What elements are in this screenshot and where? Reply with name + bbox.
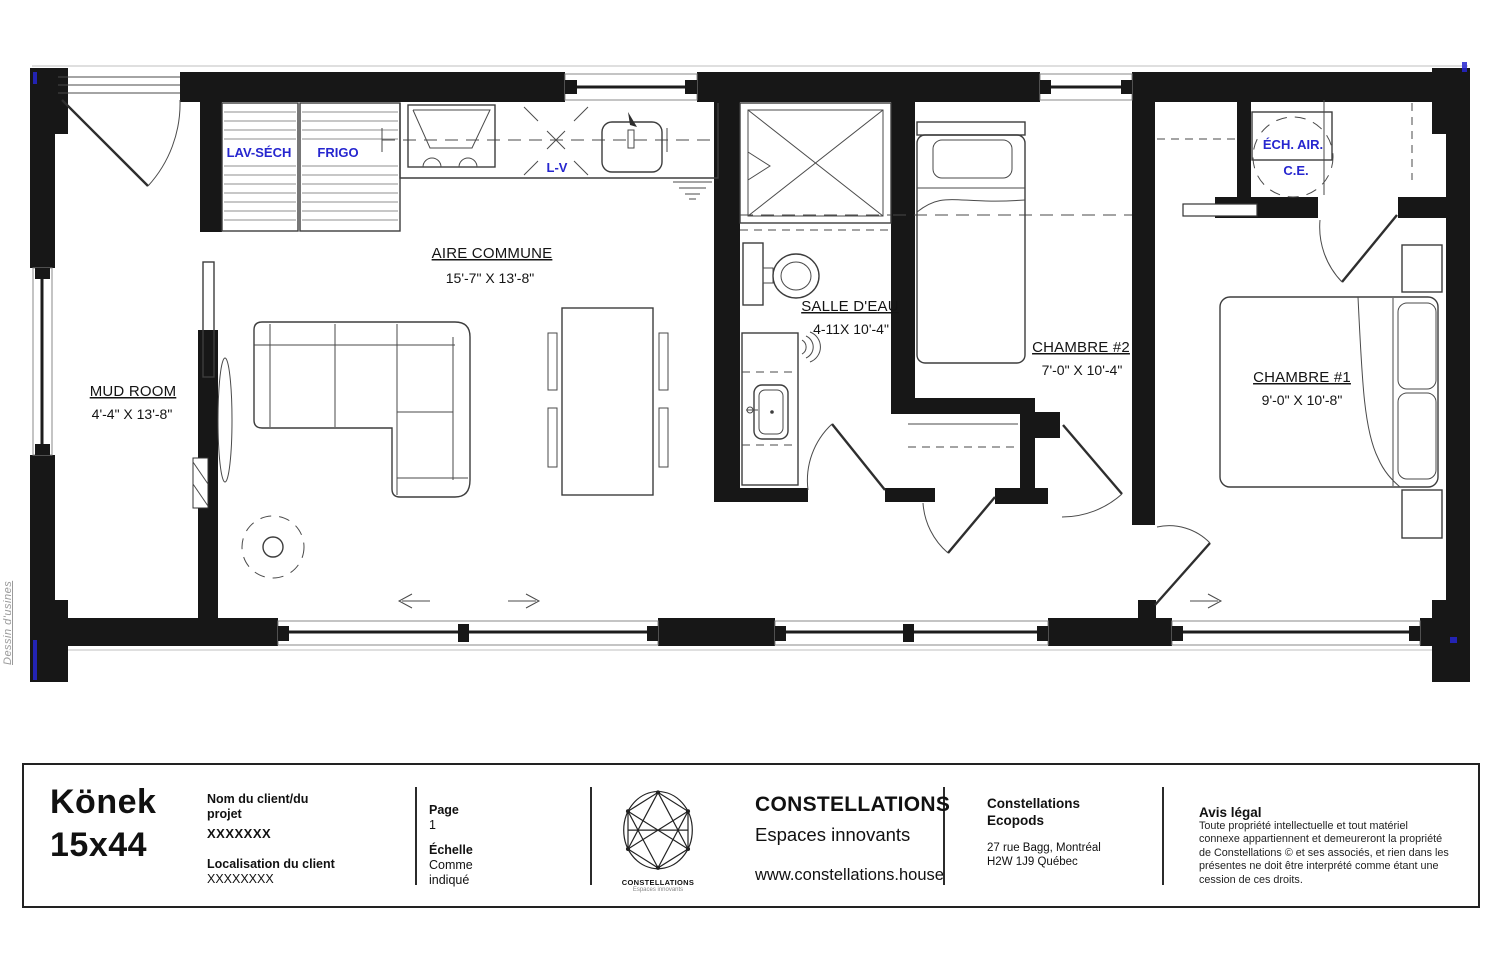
client-name-value: XXXXXXX <box>207 826 332 841</box>
divider <box>590 787 592 885</box>
bedroom1-closet-door <box>1320 215 1397 282</box>
mudroom-window <box>33 268 52 455</box>
page-label: Page <box>429 803 459 818</box>
company-name: CONSTELLATIONS <box>755 793 950 817</box>
bedroom1-corner-closet <box>1324 100 1412 195</box>
office-address-line1: 27 rue Bagg, Montréal <box>987 841 1152 855</box>
company-tagline: Espaces innovants <box>755 824 950 846</box>
svg-text:4-11X 10'-4": 4-11X 10'-4" <box>813 321 889 337</box>
office-name-line1: Constellations <box>987 795 1152 812</box>
legal-line: Toute propriété intellectuelle et tout m… <box>1199 820 1467 833</box>
title-block: Könek 15x44 Nom du client/du projet XXXX… <box>22 763 1480 908</box>
kitchen-sink <box>602 112 662 172</box>
geodesic-sphere-icon <box>615 789 701 873</box>
label-ech-air: ÉCH. AIR. <box>1263 137 1323 152</box>
company-section: CONSTELLATIONS Espaces innovants www.con… <box>755 793 950 885</box>
wall-niche <box>193 458 208 508</box>
label-lav-sech: LAV-SÉCH <box>227 145 292 160</box>
office-section: Constellations Ecopods 27 rue Bagg, Mont… <box>987 795 1152 869</box>
room-label-chambre-2: CHAMBRE #2 7'-0" X 10'-4" <box>1032 339 1130 378</box>
scale-value-line1: Comme <box>429 858 473 873</box>
svg-text:SALLE D'EAU: SALLE D'EAU <box>801 298 899 315</box>
model-name-line2: 15x44 <box>50 824 156 867</box>
slide-arrow-right-icon <box>508 594 539 608</box>
svg-text:AIRE COMMUNE: AIRE COMMUNE <box>432 245 553 262</box>
label-lv: L-V <box>547 160 568 175</box>
swivel-chair <box>242 516 304 578</box>
washer-dryer-unit <box>222 103 298 231</box>
nightstand <box>1402 490 1442 538</box>
client-location-label: Localisation du client <box>207 857 377 872</box>
legal-line: de Constellations © et ses associés, et … <box>1199 847 1467 860</box>
entry-door <box>58 77 180 186</box>
client-name-section: Nom du client/du projet XXXXXXX <box>207 792 332 841</box>
svg-text:CHAMBRE #2: CHAMBRE #2 <box>1032 339 1130 356</box>
drawing-page: MUD ROOM 4'-4" X 13'-8" AIRE COMMUNE 15'… <box>0 0 1500 956</box>
label-frigo: FRIGO <box>317 145 358 160</box>
office-address: 27 rue Bagg, Montréal H2W 1J9 Québec <box>987 841 1152 869</box>
bedroom2-window <box>1040 74 1132 100</box>
shower <box>740 103 891 230</box>
svg-text:CHAMBRE #1: CHAMBRE #1 <box>1253 369 1351 386</box>
legal-line: cession de ces droits. <box>1199 874 1467 887</box>
legal-line: connexe appartiennent et demeureront la … <box>1199 833 1467 846</box>
toilet <box>743 243 819 305</box>
office-address-line2: H2W 1J9 Québec <box>987 855 1152 869</box>
bedroom2-bed <box>917 122 1025 363</box>
page-section: Page 1 <box>429 803 459 833</box>
page-value: 1 <box>429 818 459 833</box>
air-exchanger-water-heater <box>1252 112 1333 197</box>
hall-window <box>775 621 1048 645</box>
kitchen-window <box>565 74 697 100</box>
floor-drain-icon <box>673 182 712 199</box>
client-location-value: XXXXXXXX <box>207 872 377 887</box>
hall-closet-door <box>923 497 995 553</box>
scale-value-line2: indiqué <box>429 873 473 888</box>
svg-text:7'-0" X 10'-4": 7'-0" X 10'-4" <box>1042 362 1123 378</box>
model-name: Könek 15x44 <box>50 781 156 867</box>
interior-walls <box>198 100 1446 630</box>
scale-section: Échelle Comme indiqué <box>429 843 473 888</box>
client-location-section: Localisation du client XXXXXXXX <box>207 857 377 887</box>
svg-text:MUD ROOM: MUD ROOM <box>90 383 177 400</box>
bedroom1-door <box>1155 526 1210 605</box>
bedroom2-closet-rod <box>908 424 1018 447</box>
legal-title: Avis légal <box>1199 805 1467 820</box>
scale-label: Échelle <box>429 843 473 858</box>
divider <box>1162 787 1164 885</box>
sectional-sofa <box>254 322 470 497</box>
floor-plan-drawing: MUD ROOM 4'-4" X 13'-8" AIRE COMMUNE 15'… <box>0 0 1500 760</box>
client-name-label: Nom du client/du projet <box>207 792 332 822</box>
vanity-sink <box>742 332 820 485</box>
office-name-line2: Ecopods <box>987 812 1152 829</box>
legal-section: Avis légal Toute propriété intellectuell… <box>1199 805 1467 887</box>
divider <box>415 787 417 885</box>
company-website: www.constellations.house <box>755 866 950 885</box>
legal-line: présentes ne doit être interprété comme … <box>1199 860 1467 873</box>
room-label-salle-deau: SALLE D'EAU 4-11X 10'-4" <box>801 298 899 337</box>
logo-caption: CONSTELLATIONS <box>615 878 701 887</box>
stove <box>408 105 495 167</box>
room-label-chambre-1: CHAMBRE #1 9'-0" X 10'-8" <box>1253 369 1351 408</box>
svg-text:15'-7" X 13'-8": 15'-7" X 13'-8" <box>446 270 534 286</box>
room-label-aire-commune: AIRE COMMUNE 15'-7" X 13'-8" <box>432 245 553 286</box>
fridge <box>300 103 400 231</box>
dining-table <box>548 308 668 495</box>
slide-arrow-right-icon <box>1190 594 1221 608</box>
label-ce: C.E. <box>1283 163 1308 178</box>
company-logo: CONSTELLATIONS Espaces innovants <box>615 789 701 893</box>
svg-text:4'-4" X 13'-8": 4'-4" X 13'-8" <box>92 406 173 422</box>
bedroom1-window <box>1172 621 1420 645</box>
living-patio-window <box>278 621 658 645</box>
utility-shelf <box>1183 204 1257 216</box>
vertical-watermark: Dessin d'usines <box>2 505 14 665</box>
logo-tagline: Espaces innovants <box>615 887 701 893</box>
svg-text:9'-0" X 10'-8": 9'-0" X 10'-8" <box>1262 392 1343 408</box>
bathroom-door <box>807 424 885 490</box>
slide-arrow-left-icon <box>399 594 430 608</box>
room-label-mud-room: MUD ROOM 4'-4" X 13'-8" <box>90 383 177 422</box>
model-name-line1: Könek <box>50 781 156 824</box>
bedroom2-door <box>1062 425 1122 517</box>
nightstand <box>1402 245 1442 292</box>
